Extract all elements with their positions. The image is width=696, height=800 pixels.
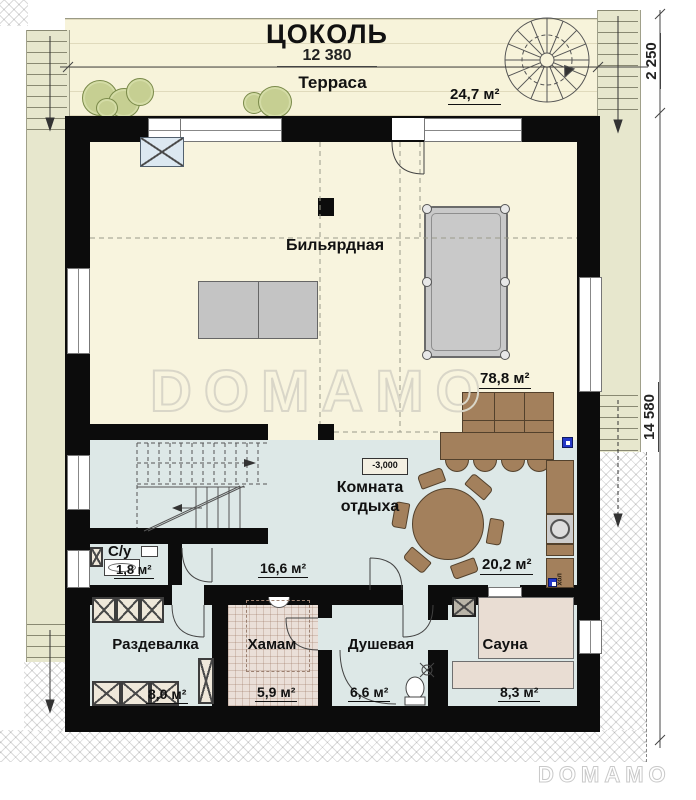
locker	[92, 597, 116, 623]
sauna-area: 8,3 м²	[498, 684, 540, 702]
window-left-stairs	[67, 455, 90, 510]
wall-shower-sauna-a	[428, 585, 448, 620]
ground-hatch-top-left	[0, 0, 28, 26]
sofa	[462, 392, 554, 434]
locker	[140, 597, 164, 623]
sauna-stove	[452, 597, 476, 617]
wall-under-stairs	[90, 528, 268, 544]
dim-top-width: 12 380	[277, 47, 377, 67]
counter-right-upper	[546, 460, 574, 514]
dining-set	[410, 486, 486, 562]
right-walkway-steps-top	[598, 10, 638, 118]
lounge-area: 20,2 м²	[480, 556, 533, 575]
wall-left	[65, 116, 90, 732]
wall-hamam-shower-b	[318, 650, 332, 706]
round-table	[412, 488, 484, 560]
wall-dressing-hamam	[212, 585, 228, 706]
hamam-label: Хамам	[234, 636, 310, 654]
dressing-label: Раздевалка	[103, 636, 208, 654]
dim-right-upper: 2 250	[643, 33, 661, 89]
table-tennis-table	[198, 281, 318, 339]
right-walkway-steps-bottom	[598, 395, 638, 452]
ground-hatch-right	[595, 452, 647, 762]
sauna-label: Сауна	[465, 636, 545, 654]
electric-panel-icon	[562, 437, 573, 448]
shaft-box	[90, 547, 103, 567]
wall-hamam-shower-a	[318, 585, 332, 618]
shower-area: 6,6 м²	[348, 684, 390, 702]
sink-icon	[550, 519, 570, 539]
wall-mid	[90, 424, 268, 440]
pocket	[500, 350, 510, 360]
pocket	[500, 204, 510, 214]
billiard-area: 78,8 м²	[478, 370, 531, 389]
billiard-label: Бильярдная	[270, 236, 400, 255]
pocket	[422, 350, 432, 360]
window-right-billiard	[579, 277, 602, 392]
fireplace-unit	[140, 137, 184, 167]
lounge-label: Комната отдыха	[325, 478, 415, 516]
window-left-wc	[67, 550, 90, 588]
lounge-label-line1: Комната	[325, 478, 415, 497]
socket-icon	[548, 578, 557, 587]
sink-unit	[546, 514, 574, 544]
window-top-1	[180, 118, 282, 142]
lounge-label-line2: отдыха	[325, 497, 415, 516]
fridge-label: хол	[557, 560, 564, 586]
shower-label: Душевая	[338, 636, 424, 654]
wall-wc-right	[168, 544, 182, 585]
locker	[116, 597, 140, 623]
left-walkway-steps-top	[27, 30, 67, 130]
wall-bottom	[65, 706, 600, 732]
tall-locker	[198, 658, 214, 704]
bush	[258, 86, 292, 118]
hall-area: 16,6 м²	[258, 560, 308, 578]
billiard-table	[424, 206, 508, 358]
floor-title: ЦОКОЛЬ	[227, 18, 427, 50]
bar-counter	[440, 432, 554, 460]
billiard-table-cloth	[431, 213, 501, 351]
dim-right-total: 14 580	[641, 382, 659, 452]
watermark-corner: DOMAMO	[538, 762, 696, 788]
elevation-mark: -3,000	[362, 458, 408, 475]
window-right-sauna	[579, 620, 602, 654]
terrace-area: 24,7 м²	[448, 86, 501, 105]
pocket	[500, 277, 510, 287]
floor-plan: хол -3,000	[0, 0, 696, 800]
wc-area: 1,8 м²	[114, 562, 154, 579]
bush	[96, 98, 118, 118]
wall-mid-pier	[318, 424, 334, 440]
locker	[92, 681, 121, 706]
ground-hatch-bottom	[0, 730, 645, 762]
window-top-2	[424, 118, 522, 142]
column	[318, 198, 334, 216]
wall-shower-sauna-b	[428, 650, 448, 706]
dressing-area: 8,0 м²	[146, 686, 188, 704]
pocket	[422, 277, 432, 287]
pocket	[422, 204, 432, 214]
terrace-label: Терраса	[290, 73, 375, 93]
terrace-door-opening	[392, 118, 424, 140]
bush	[126, 78, 154, 106]
wc-label: С/у	[108, 543, 148, 561]
window-left-billiard	[67, 268, 90, 354]
hamam-area: 5,9 м²	[255, 684, 297, 702]
counter-right-lower	[546, 544, 574, 556]
